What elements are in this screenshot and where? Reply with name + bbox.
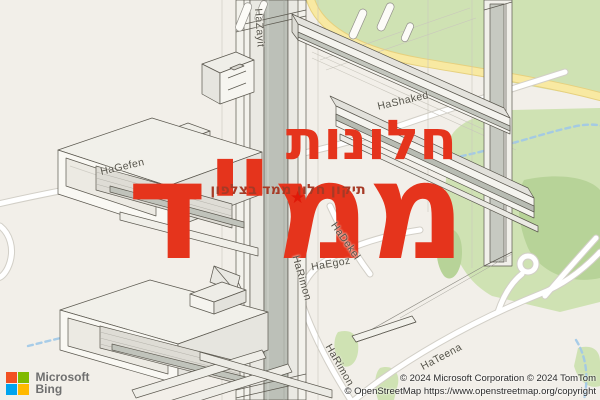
provider-name-bing: Bing [36,383,90,396]
map-ui-layer: Microsoft Bing © 2024 Microsoft Corporat… [0,0,600,400]
ms-square-blue [6,384,17,395]
bing-logo[interactable]: Microsoft Bing [6,371,90,396]
ms-square-green [18,372,29,383]
attribution-line-1: © 2024 Microsoft Corporation © 2024 TomT… [345,373,597,385]
ms-square-red [6,372,17,383]
bing-maps-viewport[interactable]: חלונות ממ"ד תיקון חלון ממד בצלפון ★ HaZa… [0,0,600,400]
microsoft-logo-icon [6,372,29,395]
ms-square-yellow [18,384,29,395]
attribution-line-2[interactable]: © OpenStreetMap https://www.openstreetma… [345,386,597,398]
map-attribution: © 2024 Microsoft Corporation © 2024 TomT… [345,373,597,398]
